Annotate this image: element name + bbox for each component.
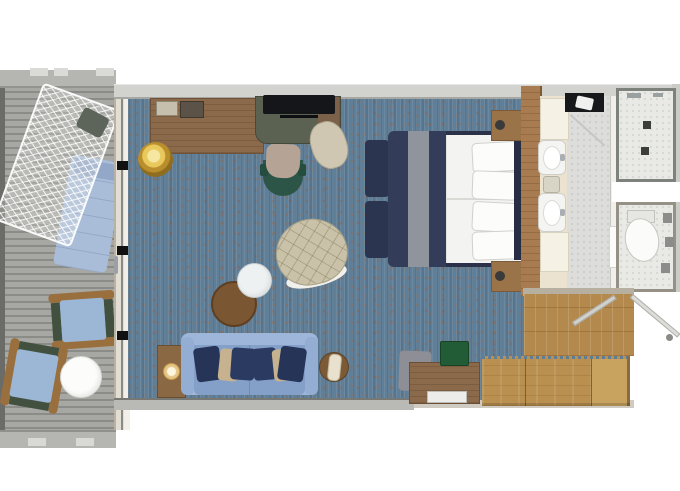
sofa-pillow-navy	[277, 345, 307, 382]
washbasin-lower	[538, 193, 566, 232]
green-storage-box	[440, 341, 469, 366]
desk-tray	[156, 101, 178, 116]
table-lamp	[327, 353, 343, 381]
sofa-end-table-right	[319, 352, 349, 382]
shower-fixture	[627, 93, 641, 98]
bed-runner	[388, 131, 446, 267]
desk-tray	[180, 101, 204, 118]
bed-pillow	[472, 170, 519, 201]
faucet	[560, 154, 565, 161]
washbasin-upper	[538, 140, 566, 175]
basin-bowl	[543, 146, 561, 170]
hammock-pillow	[75, 106, 110, 139]
deck-armchair-upper	[48, 290, 118, 350]
bath-mat	[565, 93, 604, 112]
wardrobe-shadow	[482, 403, 630, 406]
shower-fixture	[653, 93, 663, 97]
chair-cushion	[9, 349, 59, 404]
runner-navy-stripe	[388, 131, 408, 267]
bed-foot-bench	[365, 140, 389, 258]
basin-bowl	[543, 200, 561, 226]
soap-dish	[543, 176, 560, 193]
balcony-side-table	[60, 356, 102, 398]
bed-pillow	[471, 201, 519, 233]
wall-fixture	[665, 237, 674, 247]
door-handle	[114, 256, 118, 274]
rail-post-cap	[54, 68, 68, 76]
toilet-room	[616, 202, 676, 292]
towel	[575, 95, 594, 110]
tv-stand	[280, 115, 318, 118]
table-lamp	[163, 363, 180, 380]
deck-armchair-lower	[0, 337, 68, 414]
bench-cushion	[365, 201, 389, 258]
nightstand-lamp	[495, 271, 505, 281]
entry-door	[630, 294, 680, 338]
rail-post-cap	[76, 438, 94, 446]
wardrobe-divider	[591, 359, 592, 406]
rail-post-cap	[96, 68, 114, 76]
balcony-rail-bottom	[0, 430, 116, 448]
shower-control	[641, 147, 649, 155]
desk-chair	[260, 142, 306, 198]
dresser	[409, 362, 480, 404]
sofa-arm-right	[305, 337, 318, 395]
shower-drain	[643, 121, 651, 129]
bottom-wall-living	[114, 398, 414, 410]
headboard-wall-counter	[521, 86, 542, 296]
bed-pillow	[472, 230, 519, 261]
sofa-arm-left	[181, 337, 194, 395]
tv-screen	[263, 95, 335, 114]
wardrobe-end-panel	[592, 359, 630, 406]
desk-chair-backrest	[265, 143, 300, 178]
faucet	[560, 209, 565, 216]
shower-enclosure	[616, 88, 676, 182]
wardrobe-divider	[525, 359, 526, 406]
wall-fixture	[661, 263, 670, 273]
entry-floor	[524, 294, 634, 356]
wall-fixture	[663, 213, 672, 223]
chair-cushion	[60, 298, 107, 343]
vanity-cabinet	[540, 232, 569, 272]
wardrobe	[482, 356, 630, 406]
dresser-tray	[427, 391, 467, 403]
nesting-table-white	[237, 263, 272, 298]
rail-post-cap	[30, 68, 48, 76]
glass-line	[121, 84, 123, 430]
bench-cushion	[365, 140, 389, 197]
bed-pillow	[471, 141, 519, 173]
exterior-notch	[612, 182, 680, 202]
floor-plan	[0, 0, 680, 491]
gold-pouf	[138, 142, 173, 177]
rail-post-cap	[28, 438, 46, 446]
entry-door-handle	[666, 334, 673, 341]
wardrobe-edge	[627, 356, 630, 406]
runner-gray-stripe	[408, 131, 429, 267]
runner-navy-stripe	[429, 131, 446, 267]
sofa	[181, 333, 318, 398]
nightstand-lamp	[495, 120, 505, 130]
